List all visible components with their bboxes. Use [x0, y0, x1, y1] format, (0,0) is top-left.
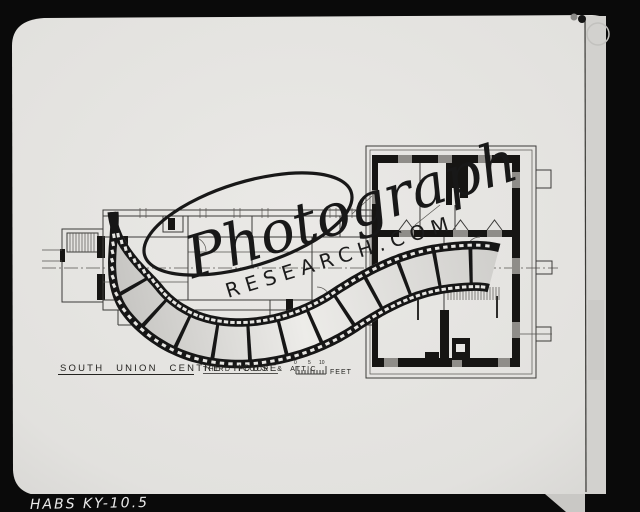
scale-tick-10: 10 [319, 360, 325, 366]
registration-dot-gray [571, 14, 578, 21]
archival-photo: Photograph RESEARCH.COM SOUTH UNION CENT… [0, 0, 640, 512]
catalog-band: HABS KY-10.5 [0, 494, 640, 512]
registration-dot-black [578, 15, 586, 23]
plan-subtitle: THIRD FLOOR & ATTIC [203, 366, 317, 373]
title-block: SOUTH UNION CENTRE HOUSE THIRD FLOOR & A… [58, 360, 352, 376]
scale-unit-label: FEET [330, 369, 352, 376]
sleeve-edge [585, 16, 609, 494]
photo-scene: Photograph RESEARCH.COM SOUTH UNION CENT… [0, 0, 640, 512]
archive-label: HABS KY-10.5 [30, 495, 149, 512]
scale-tick-0: 0 [294, 360, 297, 366]
scale-tick-5: 5 [308, 360, 311, 366]
